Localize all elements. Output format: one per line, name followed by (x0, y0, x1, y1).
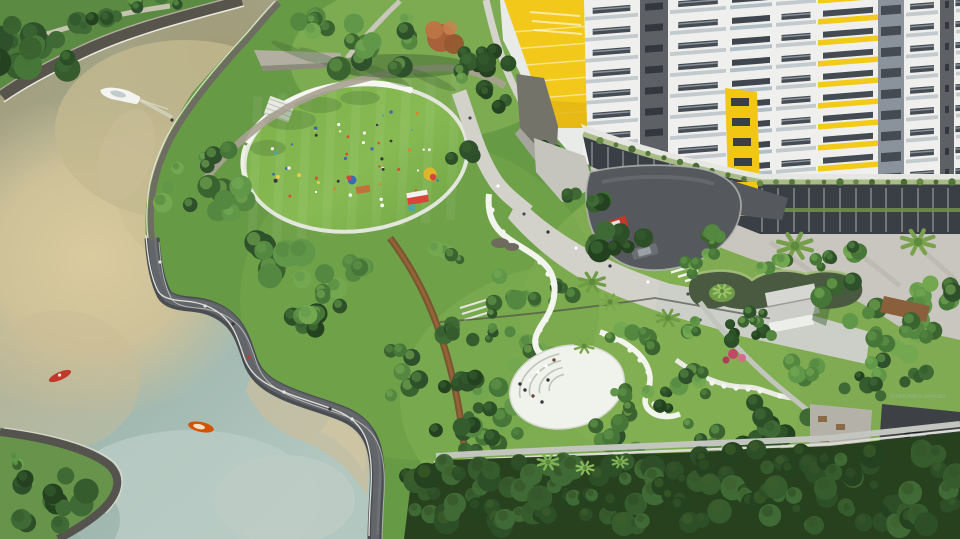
svg-text:VINHOMES GRAND: VINHOMES GRAND (890, 394, 946, 400)
